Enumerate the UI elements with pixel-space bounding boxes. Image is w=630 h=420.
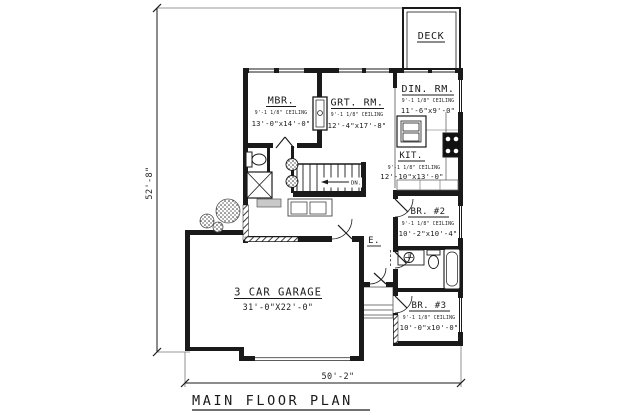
br2-size: 10'-2"x10'-4" [399, 229, 458, 238]
fireplace [313, 97, 327, 130]
din-ceiling: 9'-1 1/8" CEILING [402, 98, 455, 104]
br3-size: 10'-0"x10'-0" [400, 323, 459, 332]
br2-window [458, 206, 464, 238]
grt-label: GRT. RM. 9'-1 1/8" CEILING 12'-4"x17'-8" [328, 98, 387, 131]
kit-label: KIT. 9'-1 1/8" CEILING 12'-10"x13'-0" [380, 151, 443, 181]
din-size: 11'-6"x9'-0" [401, 106, 455, 115]
overall-depth-dimension: 52'-8" [145, 166, 155, 199]
br3-door [395, 296, 412, 313]
deck-label: DECK [417, 31, 445, 42]
bathtub [444, 249, 460, 289]
mbr-ceiling: 9'-1 1/8" CEILING [255, 110, 308, 116]
din-label: DIN. RM. 9'-1 1/8" CEILING 11'-6"x9'-0" [401, 84, 455, 115]
deck-name: DECK [418, 31, 444, 42]
garage-entry-door [332, 219, 352, 239]
stair-direction-label: DN. [351, 181, 361, 187]
br2-ceiling: 9'-1 1/8" CEILING [402, 221, 455, 227]
din-name: DIN. RM. [402, 84, 455, 95]
dimension-bottom: 50'-2" [181, 346, 465, 387]
master-toilet [246, 152, 266, 167]
front-door [370, 268, 386, 284]
entry-name: E. [368, 236, 380, 246]
br2-name: BR. #2 [411, 207, 446, 217]
master-vanity [257, 199, 281, 207]
kit-ceiling: 9'-1 1/8" CEILING [388, 165, 441, 171]
garage-label: 3 CAR GARAGE 31'-0"X22'-0" [234, 287, 322, 313]
floor-plan-canvas: 52'-8" 50'-2" [0, 0, 630, 420]
mbr-name: MBR. [268, 96, 294, 107]
br3-name: BR. #3 [412, 301, 447, 311]
front-porch [363, 287, 393, 318]
plan-title: MAIN FLOOR PLAN [192, 393, 353, 409]
shrubs [200, 199, 240, 232]
kit-size: 12'-10"x13'-0" [380, 172, 443, 181]
cooktop [443, 133, 461, 157]
br3-label: BR. #3 9'-1 1/8" CEILING 10'-0"x10'-0" [400, 301, 459, 332]
laundry-counter [288, 199, 332, 216]
din-side-window [458, 80, 464, 112]
stairs: DN. [297, 164, 363, 191]
grt-ceiling: 9'-1 1/8" CEILING [331, 112, 384, 118]
entry-label: E. [367, 236, 381, 246]
mbr-label: MBR. 9'-1 1/8" CEILING 13'-0"x14'-0" [252, 96, 311, 129]
mbr-size: 13'-0"x14'-0" [252, 119, 311, 128]
garage-overhead-doors [255, 358, 350, 361]
hall-bath-toilet [427, 250, 440, 269]
grt-name: GRT. RM. [331, 98, 384, 109]
garage-size: 31'-0"X22'-0" [243, 302, 314, 312]
floor-plan-drawing: 52'-8" 50'-2" [0, 0, 630, 420]
grt-size: 12'-4"x17'-8" [328, 121, 387, 130]
br3-ceiling: 9'-1 1/8" CEILING [403, 315, 456, 321]
title-block: MAIN FLOOR PLAN [192, 393, 370, 410]
overall-width-dimension: 50'-2" [321, 372, 354, 382]
kit-name: KIT. [399, 151, 422, 161]
garage-name: 3 CAR GARAGE [234, 287, 322, 299]
kitchen-island [397, 116, 426, 147]
master-shower [247, 172, 272, 198]
